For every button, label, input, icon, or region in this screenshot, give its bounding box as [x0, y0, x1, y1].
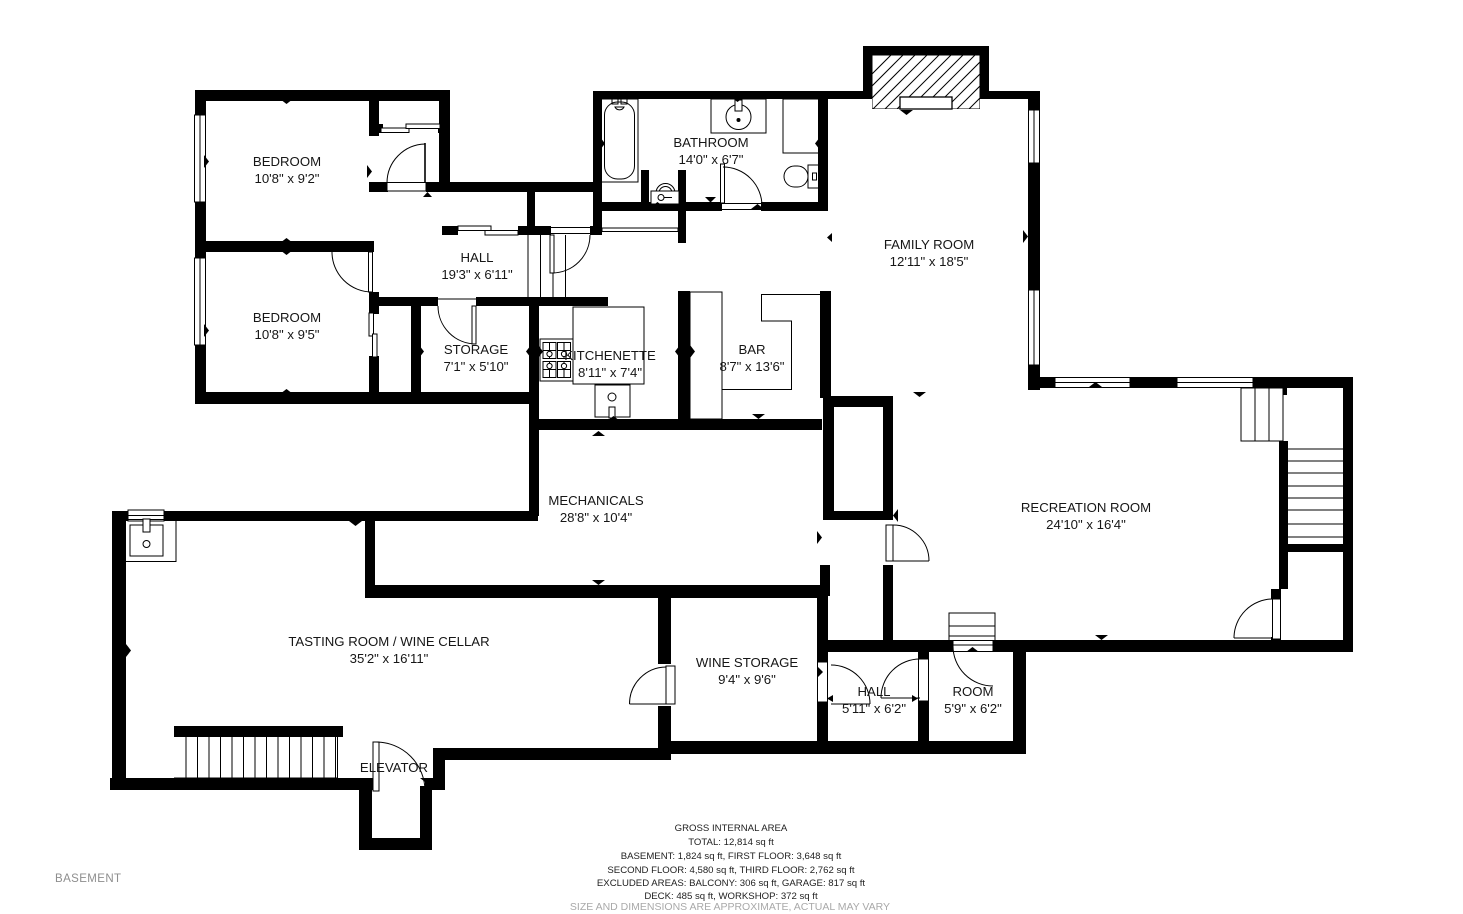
- svg-text:8'11" x 7'4": 8'11" x 7'4": [578, 365, 642, 380]
- svg-text:HALL: HALL: [461, 250, 494, 265]
- svg-text:GROSS INTERNAL AREA: GROSS INTERNAL AREA: [675, 823, 788, 834]
- svg-text:BAR: BAR: [738, 342, 765, 357]
- svg-text:35'2" x 16'11": 35'2" x 16'11": [350, 651, 429, 666]
- svg-text:BEDROOM: BEDROOM: [253, 310, 321, 325]
- svg-text:EXCLUDED AREAS: BALCONY: 306 s: EXCLUDED AREAS: BALCONY: 306 sq ft, GARA…: [597, 878, 866, 889]
- svg-text:10'8" x 9'2": 10'8" x 9'2": [255, 171, 320, 186]
- svg-text:BATHROOM: BATHROOM: [673, 135, 748, 150]
- svg-text:10'8" x 9'5": 10'8" x 9'5": [255, 327, 320, 342]
- svg-text:14'0" x 6'7": 14'0" x 6'7": [679, 152, 744, 167]
- svg-text:5'9" x 6'2": 5'9" x 6'2": [944, 701, 1002, 716]
- svg-text:5'11" x 6'2": 5'11" x 6'2": [842, 701, 906, 716]
- svg-text:TOTAL: 12,814 sq ft: TOTAL: 12,814 sq ft: [688, 837, 774, 848]
- svg-text:28'8" x 10'4": 28'8" x 10'4": [560, 510, 633, 525]
- svg-text:BEDROOM: BEDROOM: [253, 154, 321, 169]
- svg-text:STORAGE: STORAGE: [444, 342, 508, 357]
- svg-text:MECHANICALS: MECHANICALS: [548, 493, 643, 508]
- svg-text:KITCHENETTE: KITCHENETTE: [564, 348, 656, 363]
- svg-text:8'7" x 13'6": 8'7" x 13'6": [720, 359, 785, 374]
- svg-text:24'10" x 16'4": 24'10" x 16'4": [1046, 517, 1126, 532]
- svg-text:TASTING ROOM / WINE CELLAR: TASTING ROOM / WINE CELLAR: [288, 634, 489, 649]
- svg-text:12'11" x 18'5": 12'11" x 18'5": [890, 254, 969, 269]
- svg-text:ROOM: ROOM: [952, 684, 993, 699]
- svg-text:19'3" x 6'11": 19'3" x 6'11": [441, 267, 513, 282]
- svg-text:RECREATION ROOM: RECREATION ROOM: [1021, 500, 1151, 515]
- svg-text:WINE STORAGE: WINE STORAGE: [696, 655, 799, 670]
- svg-text:SIZE AND DIMENSIONS ARE APPROX: SIZE AND DIMENSIONS ARE APPROXIMATE, ACT…: [570, 901, 890, 913]
- svg-text:ELEVATOR: ELEVATOR: [360, 760, 428, 775]
- svg-text:FAMILY ROOM: FAMILY ROOM: [884, 237, 974, 252]
- svg-text:SECOND FLOOR: 4,580 sq ft, THI: SECOND FLOOR: 4,580 sq ft, THIRD FLOOR: …: [607, 865, 855, 876]
- svg-text:7'1" x 5'10": 7'1" x 5'10": [444, 359, 509, 374]
- svg-text:BASEMENT: 1,824 sq ft, FIRST F: BASEMENT: 1,824 sq ft, FIRST FLOOR: 3,64…: [621, 851, 842, 862]
- svg-text:HALL: HALL: [858, 684, 891, 699]
- svg-text:9'4" x 9'6": 9'4" x 9'6": [718, 672, 776, 687]
- svg-text:BASEMENT: BASEMENT: [55, 873, 121, 885]
